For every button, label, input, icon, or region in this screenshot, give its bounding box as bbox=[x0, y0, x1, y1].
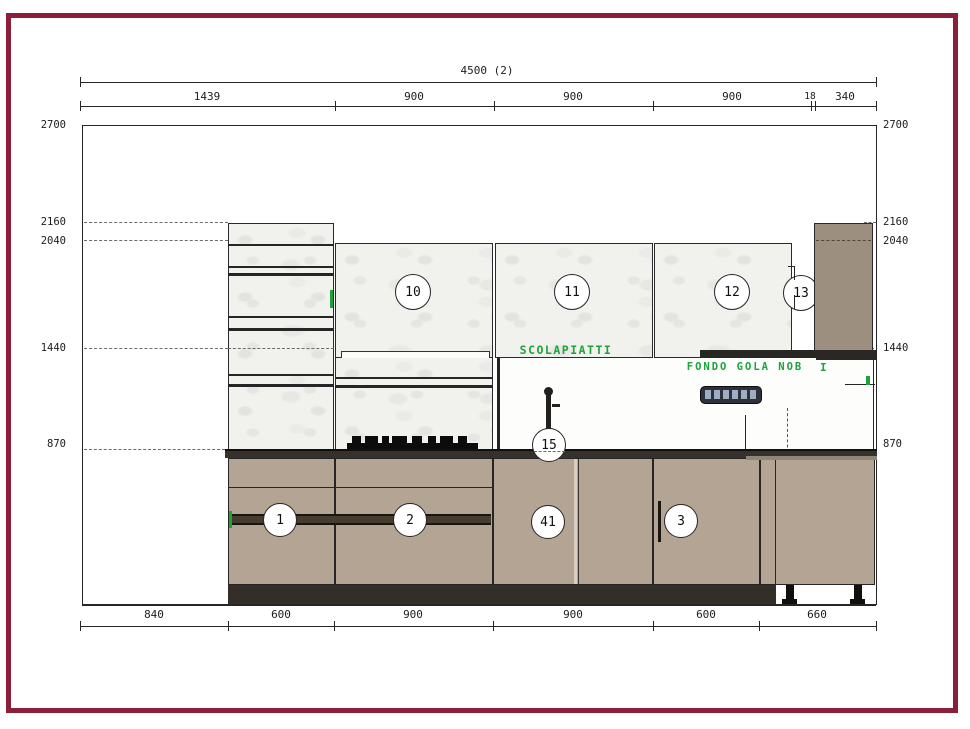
niche-right-edge bbox=[873, 351, 874, 450]
level-2160-dash bbox=[84, 222, 228, 223]
dim-bottom-600a: 600 bbox=[271, 608, 291, 621]
backsplash-band bbox=[335, 377, 493, 379]
tall-column-left bbox=[228, 223, 334, 450]
dim-tick bbox=[334, 621, 335, 631]
column-band bbox=[228, 384, 334, 387]
badge-1: 1 bbox=[263, 503, 297, 537]
height-right-1440: 1440 bbox=[883, 342, 908, 354]
dim-tick bbox=[80, 621, 81, 631]
control-panel-segment bbox=[723, 390, 729, 399]
toe-kick bbox=[228, 585, 776, 604]
badge-15-dash bbox=[534, 451, 565, 452]
dim-tick bbox=[494, 101, 495, 111]
level-2040-dash bbox=[84, 240, 228, 241]
control-panel-segment bbox=[750, 390, 756, 399]
dim-bottom-840: 840 bbox=[144, 608, 164, 621]
badge-2-label: 2 bbox=[406, 513, 414, 528]
faucet-lever bbox=[552, 404, 560, 407]
height-left-2160: 2160 bbox=[26, 216, 66, 228]
leg-left bbox=[786, 585, 794, 600]
hinge-mark-green bbox=[330, 290, 333, 308]
cooktop-knob bbox=[365, 436, 378, 444]
hinge-mark-green-base bbox=[229, 511, 232, 528]
dim-bottom-600b: 600 bbox=[696, 608, 716, 621]
dim-top-18: 18 bbox=[804, 91, 815, 102]
cooktop-knob bbox=[412, 436, 422, 444]
control-panel-segment bbox=[705, 390, 711, 399]
dim-top-900a: 900 bbox=[404, 90, 424, 103]
base-cabinet-41 bbox=[493, 458, 653, 585]
dim-line-bottom bbox=[80, 626, 876, 627]
height-right-870: 870 bbox=[883, 438, 902, 450]
base-unit-right bbox=[760, 458, 875, 585]
niche-vertical-line bbox=[745, 415, 746, 450]
dim-top-340: 340 bbox=[835, 90, 855, 103]
badge-11-label: 11 bbox=[564, 285, 580, 300]
height-left-870: 870 bbox=[26, 438, 66, 450]
badge-10: 10 bbox=[395, 274, 431, 310]
column-band bbox=[228, 244, 334, 246]
dim-line-top bbox=[80, 106, 876, 107]
cooktop-knob bbox=[352, 436, 361, 444]
level-1440-dash bbox=[84, 348, 228, 349]
tall-cabinet-shelf bbox=[816, 350, 876, 360]
dim-tick bbox=[493, 621, 494, 631]
tall-cabinet-right bbox=[814, 223, 873, 351]
column-band bbox=[228, 273, 334, 276]
column-band bbox=[228, 328, 334, 331]
note-scolapiatti: SCOLAPIATTI bbox=[520, 343, 613, 357]
hinge-symbol bbox=[794, 295, 795, 309]
badge-12-label: 12 bbox=[724, 285, 740, 300]
floor-line bbox=[82, 604, 876, 606]
door-handle-cab3 bbox=[658, 501, 661, 542]
column-band bbox=[228, 266, 334, 268]
dim-tick bbox=[80, 77, 81, 87]
dim-bottom-900a: 900 bbox=[403, 608, 423, 621]
height-right-2700: 2700 bbox=[883, 119, 908, 131]
dim-bottom-660: 660 bbox=[807, 608, 827, 621]
note-fondo-gola-mark: I bbox=[820, 361, 828, 374]
note-fondo-gola: FONDO GOLA NOB bbox=[687, 361, 804, 373]
badge-11: 11 bbox=[554, 274, 590, 310]
height-left-2700: 2700 bbox=[26, 119, 66, 131]
height-left-1440: 1440 bbox=[26, 342, 66, 354]
wall-right-line bbox=[876, 125, 877, 605]
dim-tick bbox=[876, 77, 877, 87]
dim-line-total bbox=[80, 82, 876, 83]
height-right-2160: 2160 bbox=[883, 216, 908, 228]
dim-top-900b: 900 bbox=[563, 90, 583, 103]
wall-left-line bbox=[82, 125, 83, 605]
badge-15: 15 bbox=[532, 428, 566, 462]
column-band bbox=[228, 374, 334, 376]
dim-tick bbox=[80, 101, 81, 111]
leg-right bbox=[854, 585, 862, 600]
dim-tick bbox=[228, 621, 229, 631]
countertop-right-trim bbox=[746, 456, 877, 460]
dim-top-1439: 1439 bbox=[194, 90, 221, 103]
column-band bbox=[228, 316, 334, 318]
leg-left-base bbox=[782, 599, 797, 604]
level-2040-dash-tall-cabinet bbox=[816, 240, 871, 241]
badge-2: 2 bbox=[393, 503, 427, 537]
control-panel-segment bbox=[732, 390, 738, 399]
badge-41: 41 bbox=[531, 505, 565, 539]
door-seam-light bbox=[574, 459, 577, 584]
green-mark-right bbox=[866, 376, 870, 385]
dim-tick bbox=[759, 621, 760, 631]
badge-3-label: 3 bbox=[677, 514, 685, 529]
drawer-divider-line bbox=[229, 487, 492, 488]
base-unit-right-seam bbox=[775, 458, 776, 585]
dim-tick bbox=[335, 101, 336, 111]
cooktop-knob bbox=[382, 436, 389, 444]
dim-total: 4500 (2) bbox=[461, 64, 514, 77]
dim-tick bbox=[876, 101, 877, 111]
leg-right-base bbox=[850, 599, 865, 604]
height-right-2040: 2040 bbox=[883, 235, 908, 247]
niche-right-line bbox=[845, 384, 875, 385]
dim-bottom-900b: 900 bbox=[563, 608, 583, 621]
faucet-knob bbox=[544, 387, 553, 396]
cooktop-knob bbox=[440, 436, 453, 444]
dim-tick bbox=[811, 101, 812, 111]
dim-tick bbox=[876, 621, 877, 631]
badge-10-label: 10 bbox=[405, 285, 421, 300]
cooktop-knob bbox=[428, 436, 436, 444]
hinge-symbol bbox=[788, 266, 795, 267]
badge-13-label: 13 bbox=[793, 286, 809, 301]
badge-12: 12 bbox=[714, 274, 750, 310]
level-1440-dash-column bbox=[228, 348, 334, 349]
niche-side-panel bbox=[497, 358, 500, 450]
control-panel-segment bbox=[741, 390, 747, 399]
cad-elevation-drawing: 4500 (2) 1439 900 900 900 18 340 2700 21… bbox=[0, 0, 970, 729]
level-870-dash bbox=[84, 449, 225, 450]
badge-41-label: 41 bbox=[540, 515, 556, 530]
badge-1-label: 1 bbox=[276, 513, 284, 528]
control-panel-segment bbox=[714, 390, 720, 399]
hinge-symbol bbox=[794, 266, 795, 280]
height-left-2040: 2040 bbox=[26, 235, 66, 247]
dim-tick bbox=[653, 101, 654, 111]
backsplash-band bbox=[335, 385, 493, 388]
dim-tick bbox=[653, 621, 654, 631]
dim-top-900c: 900 bbox=[722, 90, 742, 103]
ceiling-line bbox=[82, 125, 876, 126]
door-seam-line bbox=[578, 459, 579, 584]
cooktop-knob bbox=[458, 436, 467, 444]
dim-tick bbox=[815, 101, 816, 111]
badge-3: 3 bbox=[664, 504, 698, 538]
cooktop-knob bbox=[392, 436, 407, 444]
